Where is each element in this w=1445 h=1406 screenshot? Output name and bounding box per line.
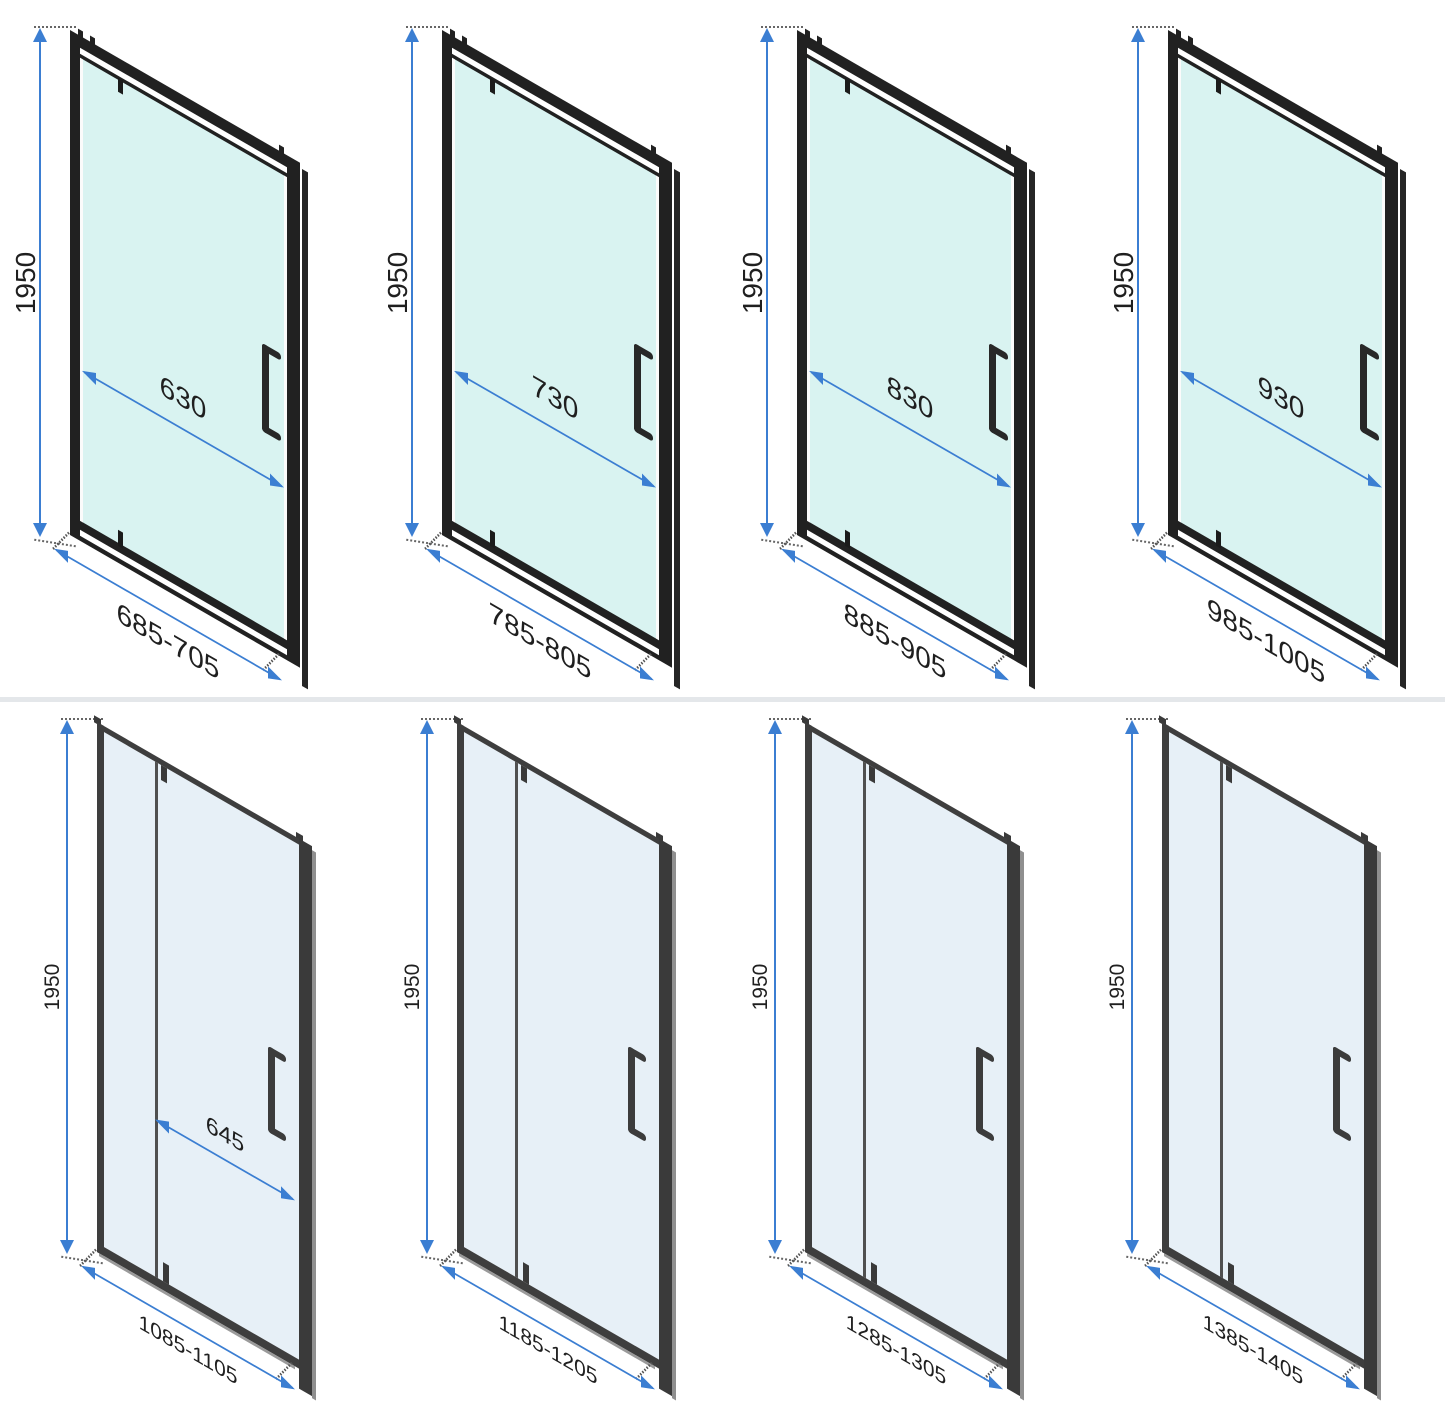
height-dimension-label: 1950 bbox=[1106, 964, 1130, 1011]
height-dimension-label: 1950 bbox=[10, 251, 42, 313]
right-arrowhead-icon bbox=[281, 1375, 295, 1395]
door-handle bbox=[1333, 1046, 1351, 1142]
frame-tab bbox=[651, 145, 656, 155]
up-arrowhead-icon bbox=[33, 28, 47, 42]
bottom-bracket bbox=[523, 1262, 529, 1284]
height-dimension: 1950 bbox=[396, 30, 428, 535]
left-frame-rail bbox=[97, 722, 104, 1256]
height-dimension-line bbox=[426, 725, 428, 1249]
bottom-bracket bbox=[845, 530, 850, 549]
height-dimension-label: 1950 bbox=[382, 251, 414, 313]
handle-bar bbox=[1333, 1046, 1340, 1136]
height-dimension-label: 1950 bbox=[1108, 251, 1140, 313]
left-frame-rail bbox=[457, 722, 464, 1256]
down-arrowhead-icon bbox=[1125, 1240, 1139, 1254]
door-handle bbox=[634, 343, 653, 442]
door-drawing bbox=[457, 722, 672, 1376]
door-projection: 1285-1305 bbox=[805, 722, 1020, 1376]
right-arrowhead-icon bbox=[989, 1375, 1003, 1395]
right-frame-side-face bbox=[1377, 850, 1381, 1400]
right-frame-rail bbox=[1007, 839, 1020, 1397]
left-frame-rail bbox=[805, 722, 812, 1256]
handle-bar bbox=[976, 1046, 983, 1136]
handle-bar bbox=[989, 343, 996, 435]
handle-bar bbox=[628, 1046, 635, 1136]
frame-tab bbox=[78, 29, 83, 39]
panel-divider bbox=[1220, 761, 1223, 1278]
height-dimension: 1950 bbox=[51, 722, 83, 1252]
height-dimension: 1950 bbox=[759, 722, 791, 1252]
down-arrowhead-icon bbox=[760, 523, 774, 537]
door-projection: 645 1085-1105 bbox=[97, 722, 312, 1376]
door-handle bbox=[628, 1046, 646, 1142]
bottom-bracket bbox=[1216, 530, 1221, 549]
top-bracket bbox=[1216, 78, 1221, 95]
height-dimension-label: 1950 bbox=[749, 964, 773, 1011]
up-arrowhead-icon bbox=[420, 720, 434, 734]
right-arrowhead-icon bbox=[641, 1375, 655, 1395]
down-arrowhead-icon bbox=[405, 523, 419, 537]
right-frame-profile bbox=[302, 169, 308, 689]
right-frame-rail bbox=[299, 839, 312, 1397]
right-frame-side-face bbox=[1020, 850, 1024, 1400]
height-dimension-line bbox=[66, 725, 68, 1249]
down-arrowhead-icon bbox=[33, 523, 47, 537]
height-dimension-label: 1950 bbox=[41, 964, 65, 1011]
door-drawing bbox=[97, 722, 312, 1376]
panel-divider bbox=[863, 761, 866, 1278]
up-arrowhead-icon bbox=[768, 720, 782, 734]
door-projection: 1185-1205 bbox=[457, 722, 672, 1376]
height-dimension: 1950 bbox=[1116, 722, 1148, 1252]
bottom-bracket bbox=[490, 530, 495, 549]
frame-tab bbox=[1188, 36, 1193, 46]
panel-divider bbox=[515, 761, 518, 1278]
right-arrowhead-icon bbox=[995, 666, 1009, 686]
handle-bar bbox=[262, 343, 269, 435]
height-dimension: 1950 bbox=[751, 30, 783, 535]
right-frame-profile bbox=[674, 169, 680, 689]
up-arrowhead-icon bbox=[760, 28, 774, 42]
handle-bar bbox=[1360, 343, 1367, 435]
frame-tab bbox=[279, 145, 284, 155]
bottom-bracket bbox=[1228, 1262, 1234, 1284]
frame-tab bbox=[805, 29, 810, 39]
right-frame-rail bbox=[1364, 839, 1377, 1397]
frame-tab bbox=[450, 29, 455, 39]
down-arrowhead-icon bbox=[768, 1240, 782, 1254]
up-arrowhead-icon bbox=[1125, 720, 1139, 734]
top-bracket bbox=[845, 78, 850, 95]
right-frame-side-face bbox=[312, 850, 316, 1400]
height-dimension-label: 1950 bbox=[401, 964, 425, 1011]
height-dimension: 1950 bbox=[411, 722, 443, 1252]
down-arrowhead-icon bbox=[60, 1240, 74, 1254]
door-handle bbox=[268, 1046, 286, 1142]
up-arrowhead-icon bbox=[405, 28, 419, 42]
frame-tab bbox=[90, 36, 95, 46]
down-arrowhead-icon bbox=[1131, 523, 1145, 537]
door-handle bbox=[262, 343, 281, 442]
door-drawing bbox=[1162, 722, 1377, 1376]
door-projection: 630 685-705 bbox=[70, 30, 300, 668]
door-projection: 830 885-905 bbox=[797, 30, 1027, 668]
right-arrowhead-icon bbox=[1346, 1375, 1360, 1395]
right-frame-profile bbox=[1400, 169, 1406, 689]
height-dimension-line bbox=[1131, 725, 1133, 1249]
top-bracket bbox=[118, 78, 123, 95]
panel-divider bbox=[155, 761, 158, 1278]
height-dimension-label: 1950 bbox=[737, 251, 769, 313]
bottom-bracket bbox=[118, 530, 123, 549]
top-bracket bbox=[490, 78, 495, 95]
frame-tab bbox=[1377, 145, 1382, 155]
handle-bar bbox=[268, 1046, 275, 1136]
right-frame-profile bbox=[1029, 169, 1035, 689]
frame-tab bbox=[1006, 145, 1011, 155]
right-arrowhead-icon bbox=[640, 666, 654, 686]
top-bracket bbox=[521, 765, 527, 783]
right-frame-rail bbox=[659, 839, 672, 1397]
up-arrowhead-icon bbox=[60, 720, 74, 734]
right-frame-side-face bbox=[672, 850, 676, 1400]
top-bracket bbox=[869, 765, 875, 783]
door-handle bbox=[1360, 343, 1379, 442]
height-dimension: 1950 bbox=[24, 30, 56, 535]
left-frame-rail bbox=[1162, 722, 1169, 1256]
top-bracket bbox=[161, 765, 167, 783]
bottom-bracket bbox=[871, 1262, 877, 1284]
door-projection: 930 985-1005 bbox=[1168, 30, 1398, 668]
top-bracket bbox=[1226, 765, 1232, 783]
diagram-canvas: 1950 bbox=[0, 0, 1445, 1406]
height-dimension: 1950 bbox=[1122, 30, 1154, 535]
height-dimension-line bbox=[774, 725, 776, 1249]
right-arrowhead-icon bbox=[268, 666, 282, 686]
up-arrowhead-icon bbox=[1131, 28, 1145, 42]
right-arrowhead-icon bbox=[1366, 666, 1380, 686]
down-arrowhead-icon bbox=[420, 1240, 434, 1254]
handle-bar bbox=[634, 343, 641, 435]
bottom-bracket bbox=[163, 1262, 169, 1284]
door-projection: 1385-1405 bbox=[1162, 722, 1377, 1376]
frame-tab bbox=[462, 36, 467, 46]
frame-tab bbox=[817, 36, 822, 46]
door-projection: 730 785-805 bbox=[442, 30, 672, 668]
row-divider bbox=[0, 697, 1445, 702]
door-drawing bbox=[805, 722, 1020, 1376]
door-handle bbox=[976, 1046, 994, 1142]
frame-tab bbox=[1176, 29, 1181, 39]
door-handle bbox=[989, 343, 1008, 442]
